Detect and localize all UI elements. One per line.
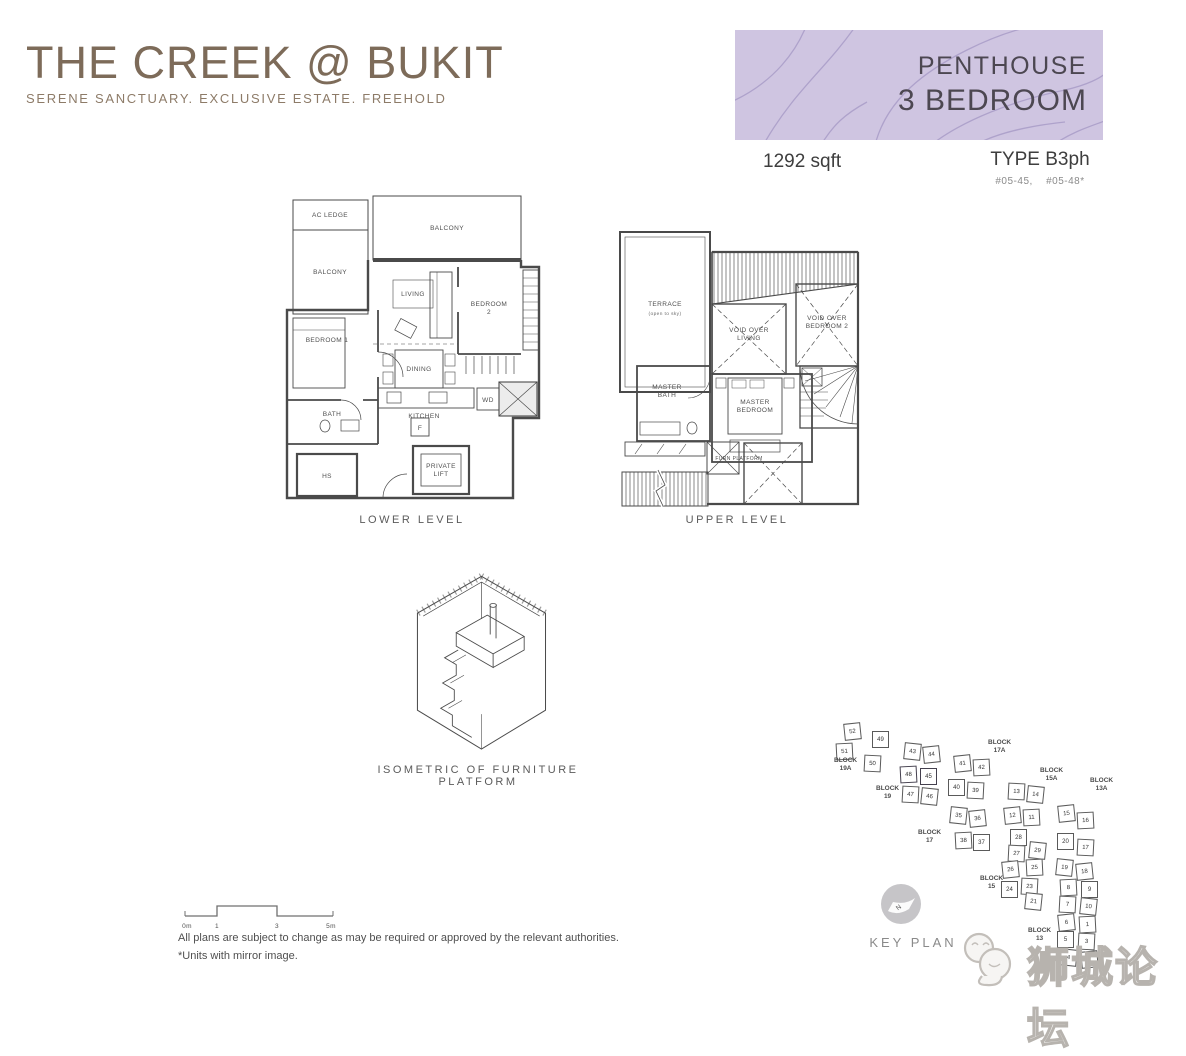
keyplan-unit-25: 25: [1026, 859, 1044, 877]
north-arrow-icon: N: [878, 881, 924, 927]
room-label-bath: BATH: [323, 411, 341, 418]
lower-level-floorplan: AC LEDGE BALCONY BALCONY BEDROOM 1 LIVIN…: [283, 192, 541, 517]
keyplan-unit-20: 20: [1057, 833, 1074, 850]
unit-numbers: #05-45, #05-48*: [955, 176, 1125, 187]
room-label-furn-platform: FURN PLATFORM: [715, 456, 762, 462]
watermark-text: 狮城论坛: [1027, 934, 1186, 1056]
keyplan-unit-26: 26: [1001, 860, 1020, 879]
banner-bedrooms: 3 BEDROOM: [898, 84, 1087, 118]
upper-level-caption: UPPER LEVEL: [612, 514, 862, 526]
keyplan-unit-41: 41: [953, 754, 972, 773]
keyplan-unit-45: 45: [920, 768, 937, 785]
logo-title: THE CREEK @ BUKIT: [26, 40, 504, 85]
scale-label-3: 3: [275, 923, 279, 930]
keyplan-unit-8: 8: [1060, 879, 1078, 897]
isometric-caption: ISOMETRIC OF FURNITURE PLATFORM: [368, 764, 588, 788]
disclaimer-line2: *Units with mirror image.: [178, 948, 738, 966]
upper-level-floorplan: TERRACE (open to sky) VOID OVER LIVING V…: [612, 226, 862, 518]
brand-logo: THE CREEK @ BUKIT SERENE SANCTUARY. EXCL…: [26, 40, 504, 106]
disclaimer: All plans are subject to change as may b…: [178, 930, 738, 965]
keyplan-unit-12: 12: [1003, 806, 1022, 825]
keyplan-unit-52: 52: [843, 722, 862, 741]
room-label-private-lift-2: LIFT: [434, 471, 449, 478]
banner-text: PENTHOUSE 3 BEDROOM: [898, 52, 1087, 118]
room-label-bedroom2: BEDROOM: [471, 301, 507, 308]
keyplan-block-label-0: BLOCK 19A: [834, 757, 857, 774]
keyplan-unit-48: 48: [900, 766, 918, 784]
room-label-void-bedroom2-2: BEDROOM 2: [806, 323, 849, 330]
keyplan-block-label-1: BLOCK 19: [876, 785, 899, 802]
scale-label-1: 1: [215, 923, 219, 930]
keyplan-unit-11: 11: [1023, 809, 1041, 827]
keyplan-unit-49: 49: [872, 731, 889, 748]
keyplan-unit-16: 16: [1077, 812, 1095, 830]
unit-area: 1292 sqft: [763, 151, 841, 173]
keyplan-block-label-3: BLOCK 17: [918, 829, 941, 846]
forum-watermark: 狮城论坛: [955, 928, 1186, 998]
room-label-void-bedroom2: VOID OVER: [807, 315, 847, 322]
keyplan-unit-35: 35: [949, 806, 968, 825]
keyplan-unit-15: 15: [1057, 804, 1076, 823]
unit-type-block: TYPE B3ph #05-45, #05-48*: [955, 149, 1125, 187]
keyplan-unit-39: 39: [967, 782, 985, 800]
room-label-void-living: VOID OVER: [729, 327, 769, 334]
keyplan-unit-42: 42: [973, 759, 991, 777]
lion-mascot-icon: [955, 928, 1030, 990]
keyplan-block-label-5: BLOCK 15: [980, 875, 1003, 892]
room-label-void-living-2: LIVING: [737, 335, 761, 342]
keyplan-unit-46: 46: [920, 787, 939, 806]
keyplan-unit-29: 29: [1028, 841, 1047, 860]
keyplan-unit-43: 43: [903, 742, 922, 761]
keyplan-unit-13: 13: [1008, 783, 1026, 801]
keyplan-unit-18: 18: [1075, 862, 1094, 881]
keyplan-unit-9: 9: [1081, 881, 1098, 898]
keyplan-unit-44: 44: [922, 745, 941, 764]
room-label-fridge: F: [418, 425, 422, 432]
keyplan-unit-40: 40: [948, 779, 965, 796]
keyplan-unit-47: 47: [902, 786, 920, 804]
room-label-dining: DINING: [406, 366, 431, 373]
keyplan-block-label-4: BLOCK 15A: [1040, 767, 1063, 784]
room-label-bedroom1: BEDROOM 1: [306, 337, 349, 344]
room-label-ac-ledge: AC LEDGE: [312, 212, 348, 219]
room-label-master-bath: MASTER: [652, 384, 682, 391]
unit-type-code: TYPE B3ph: [955, 149, 1125, 171]
scale-label-0m: 0m: [182, 923, 192, 930]
keyplan-unit-38: 38: [955, 832, 973, 850]
logo-tagline: SERENE SANCTUARY. EXCLUSIVE ESTATE. FREE…: [26, 91, 504, 106]
room-label-hs: HS: [322, 473, 332, 480]
room-label-bedroom2-num: 2: [487, 309, 491, 316]
room-label-terrace-sub: (open to sky): [649, 311, 682, 317]
room-label-master-bath-2: BATH: [658, 392, 676, 399]
room-label-kitchen: KITCHEN: [408, 413, 439, 420]
keyplan-block-label-2: BLOCK 17A: [988, 739, 1011, 756]
keyplan-unit-37: 37: [973, 834, 990, 851]
room-label-master-bedroom-2: BEDROOM: [737, 407, 773, 414]
room-label-master-bedroom: MASTER: [740, 399, 770, 406]
room-label-living: LIVING: [401, 291, 425, 298]
room-label-terrace: TERRACE: [648, 301, 682, 308]
scale-label-5m: 5m: [326, 923, 336, 930]
keyplan-unit-21: 21: [1024, 892, 1043, 911]
isometric-drawing: [398, 568, 563, 768]
keyplan-unit-17: 17: [1077, 839, 1095, 857]
lower-level-caption: LOWER LEVEL: [283, 514, 541, 526]
keyplan-block-label-6: BLOCK 13A: [1090, 777, 1113, 794]
banner-penthouse: PENTHOUSE: [898, 52, 1087, 81]
keyplan-unit-10: 10: [1079, 897, 1098, 916]
keyplan-unit-19: 19: [1055, 858, 1074, 877]
keyplan-unit-28: 28: [1010, 829, 1027, 846]
disclaimer-line1: All plans are subject to change as may b…: [178, 930, 738, 948]
unit-type-banner: PENTHOUSE 3 BEDROOM: [735, 30, 1103, 140]
room-label-balcony-left: BALCONY: [313, 269, 347, 276]
room-label-balcony-top: BALCONY: [430, 225, 464, 232]
room-label-private-lift: PRIVATE: [426, 463, 456, 470]
room-label-wd: WD: [482, 397, 494, 404]
scale-bar: 0m 1 3 5m: [175, 897, 355, 933]
keyplan-unit-36: 36: [968, 809, 987, 828]
keyplan-unit-7: 7: [1059, 896, 1077, 914]
keyplan-unit-50: 50: [864, 755, 882, 773]
keyplan-unit-14: 14: [1026, 785, 1045, 804]
keyplan-unit-24: 24: [1001, 881, 1018, 898]
